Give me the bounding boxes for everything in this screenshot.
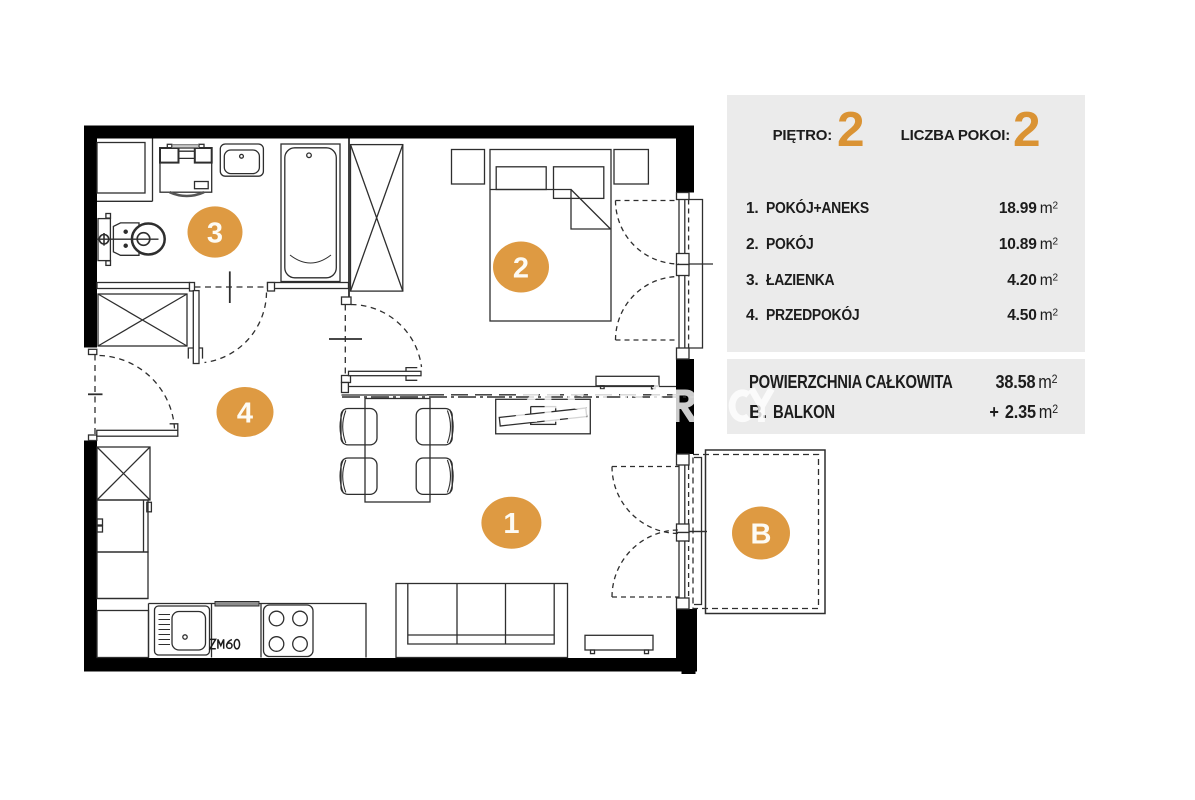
svg-text:B: B (751, 519, 772, 551)
svg-text:3: 3 (207, 217, 223, 249)
svg-text:1: 1 (503, 508, 519, 540)
svg-text:2: 2 (513, 252, 529, 284)
svg-text:4: 4 (237, 397, 253, 429)
